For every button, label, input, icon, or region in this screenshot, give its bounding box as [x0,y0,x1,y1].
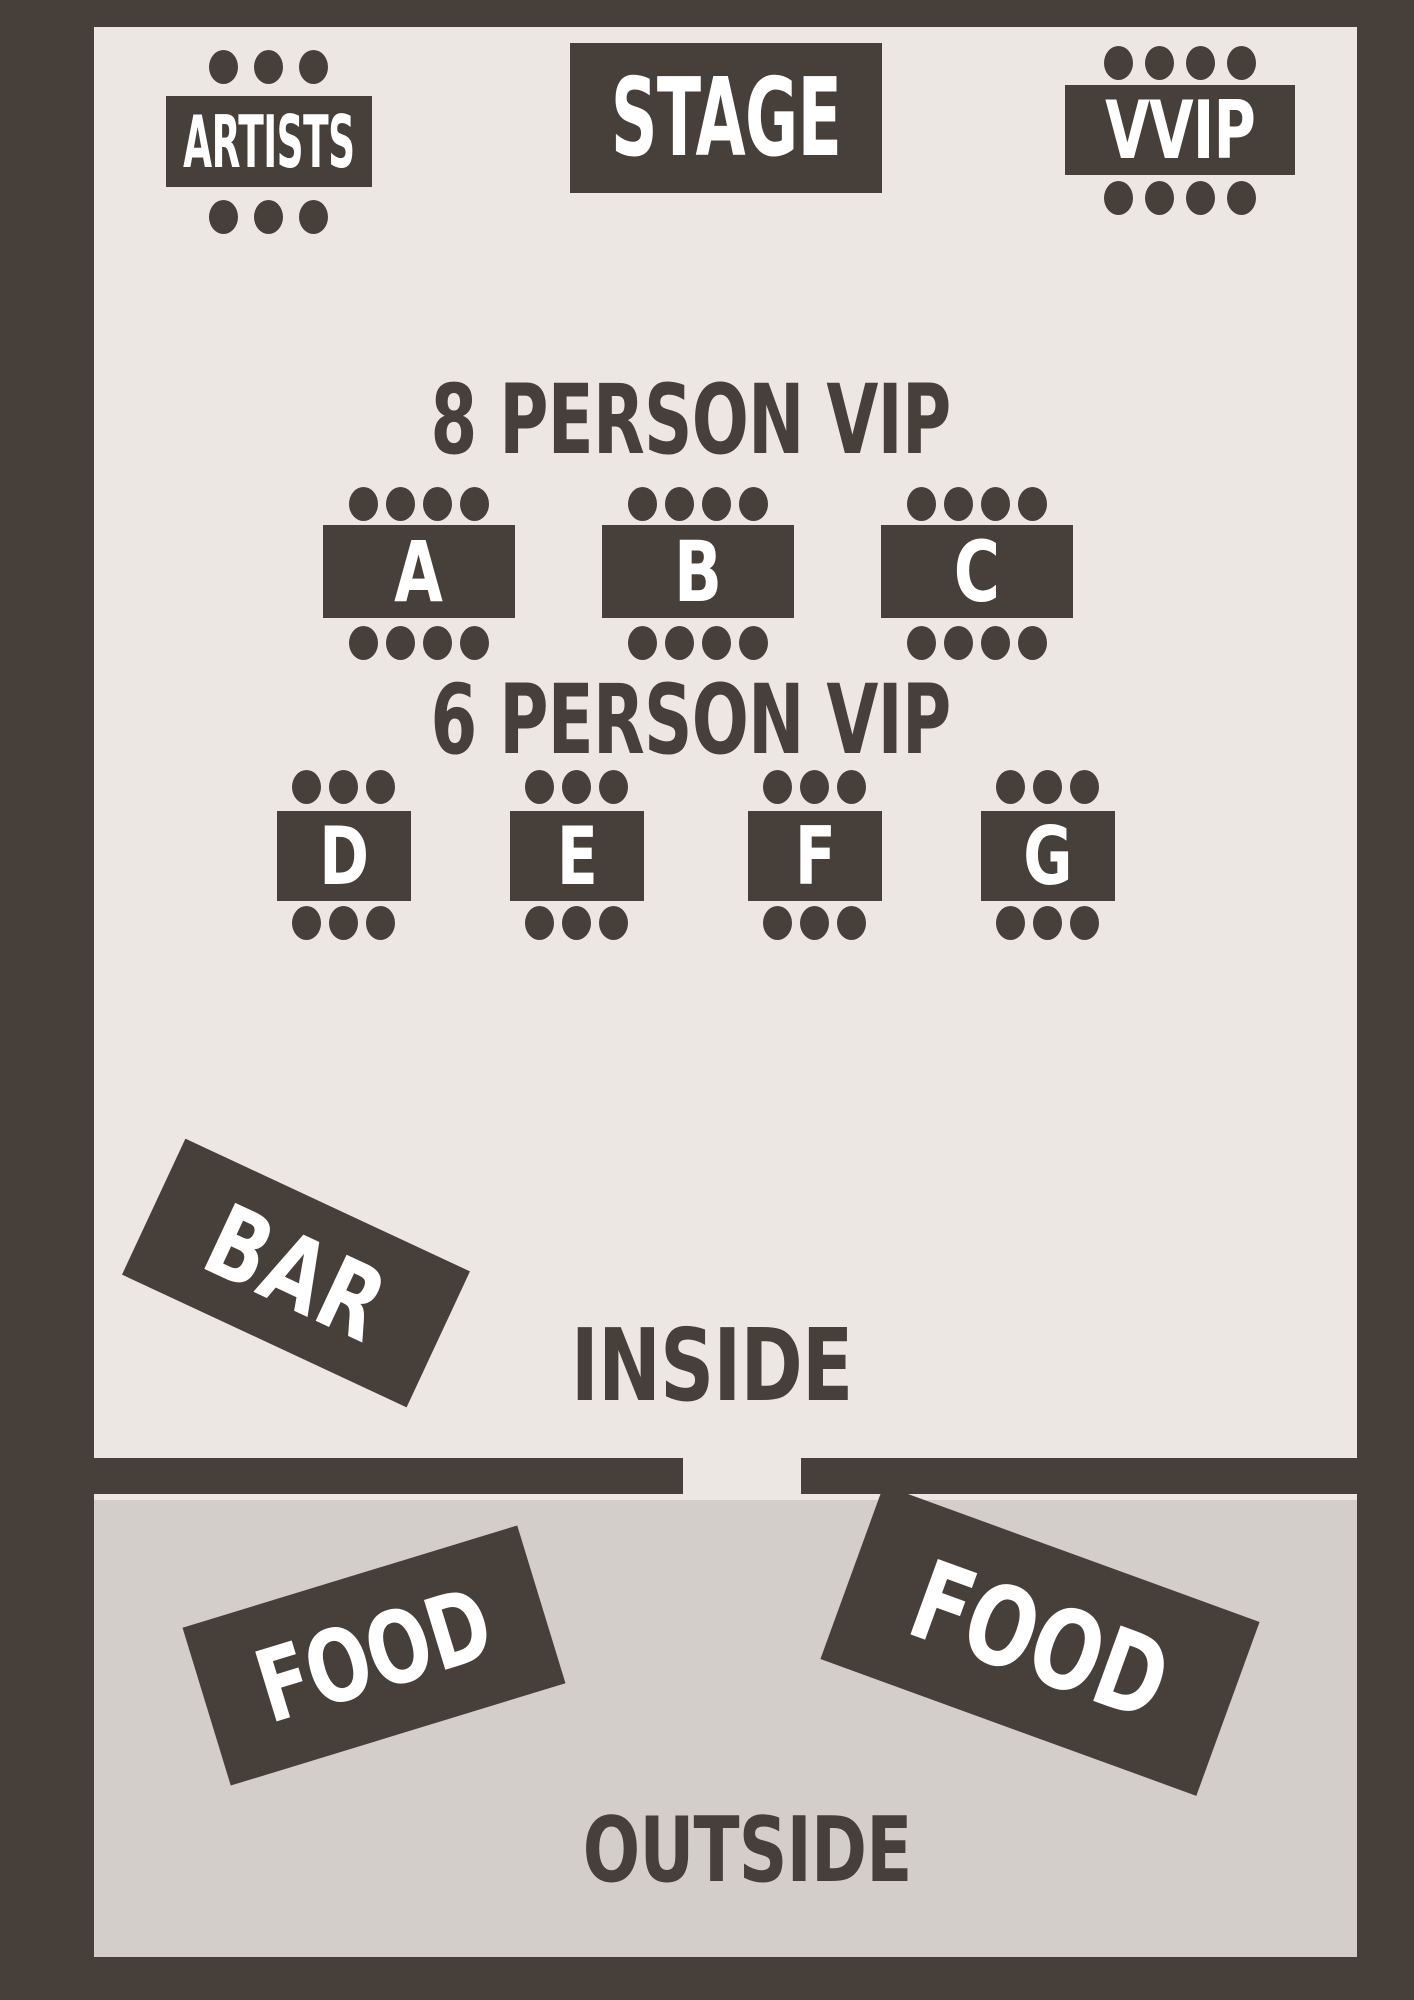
seat-dot [1104,46,1133,80]
artists-label: ARTISTS [183,100,354,184]
seat-dot [702,487,731,521]
table-g-seats-bottom [996,906,1099,940]
seat-dot [209,200,238,234]
vvip-table: VVIP [1065,85,1295,175]
seat-dot [254,200,283,234]
table-a-label: A [395,523,444,621]
seat-dot [907,626,936,660]
seat-dot [981,487,1010,521]
seat-dot [386,626,415,660]
seat-dot [1033,770,1062,804]
table-a-seats-bottom [349,626,489,660]
seat-dot [837,906,866,940]
seat-dot [1070,906,1099,940]
vip8-heading-text: 8 PERSON VIP [430,375,950,465]
seat-dot [1186,46,1215,80]
seat-dot [299,200,328,234]
seat-dot [996,770,1025,804]
vvip-seats-top [1104,46,1256,80]
table-g-seats-top [996,770,1099,804]
seat-dot [254,50,283,84]
seat-dot [996,906,1025,940]
inside-area-text: INSIDE [571,1316,853,1416]
seat-dot [1070,770,1099,804]
table-d-label: D [319,810,369,903]
seat-dot [628,626,657,660]
seat-dot [599,906,628,940]
seat-dot [209,50,238,84]
seat-dot [386,487,415,521]
inside-area-label: INSIDE [512,1316,912,1416]
stage-label: STAGE [611,56,841,181]
table-d-seats-top [292,770,395,804]
artists-table: ARTISTS [166,96,372,187]
seat-dot [292,770,321,804]
seat-dot [944,626,973,660]
table-e-seats-bottom [525,906,628,940]
seat-dot [1145,181,1174,215]
seat-dot [366,906,395,940]
seat-dot [349,626,378,660]
table-b-label: B [674,523,722,621]
seat-dot [329,770,358,804]
seat-dot [1186,181,1215,215]
table-b: B [602,525,794,618]
stage: STAGE [570,43,882,193]
table-g: G [981,811,1115,901]
vvip-seats-bottom [1104,181,1256,215]
seat-dot [739,626,768,660]
seat-dot [763,770,792,804]
table-a-seats-top [349,487,489,521]
seat-dot [981,626,1010,660]
seat-dot [1104,181,1133,215]
table-d: D [277,811,411,901]
seat-dot [739,487,768,521]
seat-dot [628,487,657,521]
seat-dot [460,487,489,521]
seat-dot [1018,626,1047,660]
vip8-heading: 8 PERSON VIP [240,375,1140,465]
seat-dot [800,770,829,804]
table-g-label: G [1023,810,1072,903]
seat-dot [944,487,973,521]
seat-dot [837,770,866,804]
table-c-label: C [954,523,1000,621]
table-b-seats-bottom [628,626,768,660]
table-b-seats-top [628,487,768,521]
table-e: E [510,811,644,901]
table-c-seats-bottom [907,626,1047,660]
table-c-seats-top [907,487,1047,521]
vip6-heading-text: 6 PERSON VIP [430,675,950,765]
seat-dot [1033,906,1062,940]
table-f: F [748,811,882,901]
vip6-heading: 6 PERSON VIP [240,675,1140,765]
artists-seats-top [209,50,328,84]
artists-seats-bottom [209,200,328,234]
seat-dot [763,906,792,940]
table-f-seats-bottom [763,906,866,940]
seat-dot [1227,181,1256,215]
seat-dot [292,906,321,940]
seat-dot [460,626,489,660]
table-e-label: E [557,810,598,903]
seat-dot [599,770,628,804]
seat-dot [525,770,554,804]
table-c: C [881,525,1073,618]
seat-dot [1145,46,1174,80]
table-f-label: F [795,810,836,903]
outside-area-text: OUTSIDE [583,1798,912,1903]
seat-dot [423,487,452,521]
seat-dot [800,906,829,940]
seat-dot [665,487,694,521]
table-d-seats-bottom [292,906,395,940]
seat-dot [329,906,358,940]
seat-dot [366,770,395,804]
table-a: A [323,525,515,618]
seat-dot [349,487,378,521]
seat-dot [1227,46,1256,80]
seat-dot [562,770,591,804]
seat-dot [665,626,694,660]
vvip-label: VVIP [1105,84,1255,177]
outside-area-label: OUTSIDE [528,1798,928,1903]
table-f-seats-top [763,770,866,804]
seat-dot [299,50,328,84]
seat-dot [1018,487,1047,521]
seat-dot [562,906,591,940]
seat-dot [423,626,452,660]
seat-dot [525,906,554,940]
divider-wall-left [94,1458,683,1494]
table-e-seats-top [525,770,628,804]
venue-map: ARTISTS STAGE VVIP 8 PERSON VIP A B C 6 … [0,0,1414,2000]
seat-dot [907,487,936,521]
seat-dot [702,626,731,660]
